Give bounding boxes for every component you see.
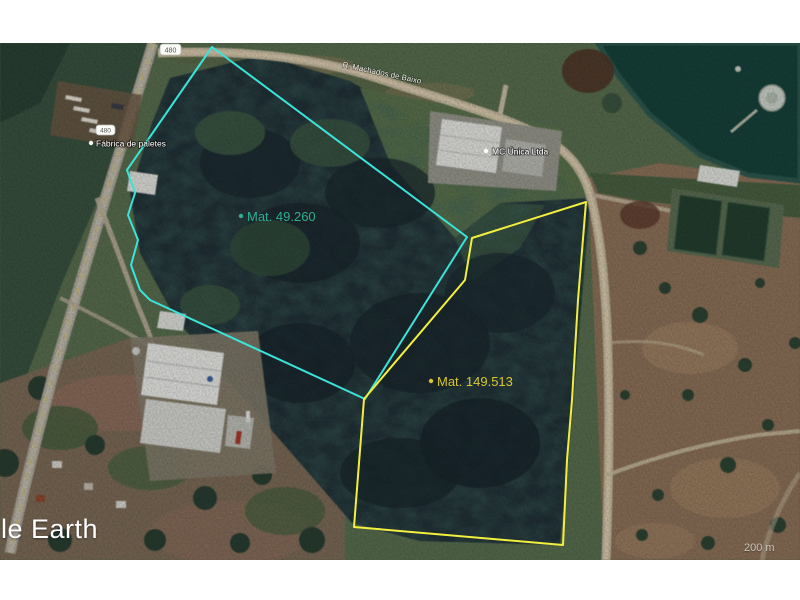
bottom-white-margin bbox=[0, 560, 800, 600]
image-grain bbox=[0, 43, 800, 560]
scale-label: 200 m bbox=[744, 542, 775, 554]
top-white-margin bbox=[0, 0, 800, 43]
road-shield-480-top: 480 bbox=[160, 44, 181, 55]
road-shield-number: 480 bbox=[165, 48, 177, 55]
road-shield-480-left: 480 bbox=[96, 125, 115, 135]
parcel-marker-icon bbox=[429, 379, 433, 383]
parcel-marker-icon bbox=[239, 214, 243, 218]
poi-dot-icon bbox=[484, 149, 488, 153]
place-label-business[interactable]: MC Única Ltda bbox=[492, 147, 548, 157]
satellite-map[interactable]: Mat. 49.260 Mat. 149.513 480 480 Fábrica… bbox=[0, 43, 800, 560]
google-earth-watermark: le Earth bbox=[1, 514, 98, 545]
google-earth-screenshot: Mat. 49.260 Mat. 149.513 480 480 Fábrica… bbox=[0, 0, 800, 600]
poi-dot-icon bbox=[89, 141, 93, 145]
road-shield-number: 480 bbox=[100, 128, 111, 135]
parcel-label-149513: Mat. 149.513 bbox=[437, 374, 513, 389]
place-label-factory[interactable]: Fábrica de paletes bbox=[96, 139, 166, 149]
parcel-label-49260: Mat. 49.260 bbox=[247, 209, 316, 224]
